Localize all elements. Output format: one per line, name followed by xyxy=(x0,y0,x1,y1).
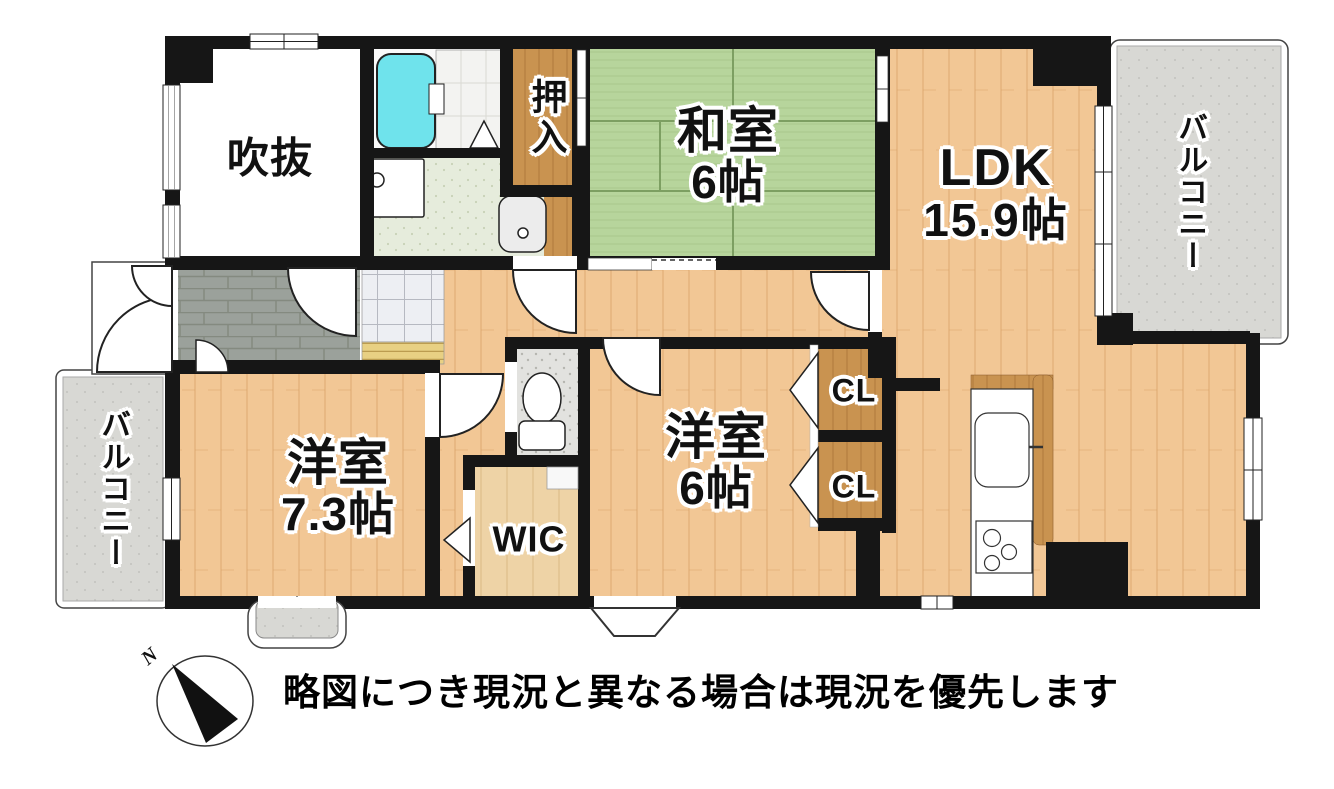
wic-corner-notch xyxy=(547,467,578,489)
kitchen-sink xyxy=(975,413,1029,487)
window xyxy=(250,34,318,49)
room-label-western73: 洋室 7.3帖 xyxy=(281,436,395,540)
room-size: 6帖 xyxy=(677,158,779,208)
bath-door xyxy=(429,84,444,114)
balcony-sliding-window xyxy=(1095,106,1112,316)
room-label-western6: 洋室 6帖 xyxy=(665,410,767,514)
washbasin-drain xyxy=(518,228,528,238)
stove-burner xyxy=(1002,545,1017,560)
bathtub xyxy=(377,54,435,148)
stove-burner xyxy=(985,556,1000,571)
disclaimer-text: 略図につき現況と異なる場合は現況を優先します xyxy=(283,662,1119,716)
window xyxy=(921,596,953,609)
oshiire-fusuma xyxy=(577,50,586,146)
room-label-ldk: LDK 15.9帖 xyxy=(923,140,1069,246)
bay-window-west73 xyxy=(248,597,346,648)
room-label-closet1: CL xyxy=(832,374,877,409)
room-label-balcony-right: バルコニー xyxy=(1173,112,1205,272)
room-size: 15.9帖 xyxy=(923,196,1069,246)
washbasin xyxy=(499,196,546,252)
washitsu-west-sliding xyxy=(877,56,888,122)
stove-burner xyxy=(984,530,1001,547)
room-name: 洋室 xyxy=(665,409,767,465)
room-label-balcony-left: バルコニー xyxy=(96,409,128,569)
kitchen-counter-wood-side xyxy=(1033,375,1053,545)
genkan-marble-floor xyxy=(362,266,444,342)
room-label-closet2: CL xyxy=(832,470,877,505)
room-label-oshiire: 押入 xyxy=(527,78,566,158)
floorplan-page: 吹抜 押入 和室 6帖 LDK 15.9帖 バルコニー バルコニー 洋室 7.3… xyxy=(0,0,1334,789)
toilet-bowl xyxy=(523,373,561,423)
room-name: LDK xyxy=(940,139,1053,197)
washing-machine xyxy=(366,159,424,217)
room-label-wic: WIC xyxy=(493,521,566,560)
toilet-door-opening xyxy=(505,362,517,432)
window xyxy=(163,205,180,258)
toilet-tank xyxy=(519,421,565,450)
room-name: 洋室 xyxy=(287,435,389,491)
bay-window-west6 xyxy=(591,608,679,636)
room-label-washitsu: 和室 6帖 xyxy=(677,104,779,208)
window xyxy=(163,85,180,190)
room-size: 7.3帖 xyxy=(281,490,395,540)
room-size: 6帖 xyxy=(665,464,767,514)
room-name: 和室 xyxy=(677,103,779,159)
washitsu-south-sliding xyxy=(588,258,716,270)
window xyxy=(1244,418,1262,520)
room-label-void: 吹抜 xyxy=(227,135,313,180)
western73-door-opening xyxy=(425,373,440,437)
compass xyxy=(157,656,253,746)
window xyxy=(163,478,180,540)
corridor-ldk-opening xyxy=(868,270,882,332)
washroom-door-opening xyxy=(513,256,577,270)
